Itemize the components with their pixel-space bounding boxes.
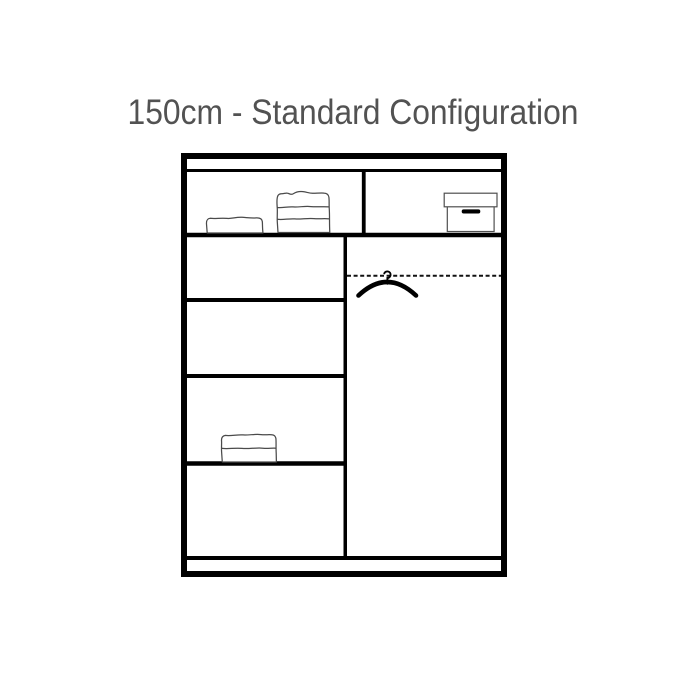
svg-text:150cm - Standard Configuration: 150cm - Standard Configuration — [128, 93, 579, 132]
